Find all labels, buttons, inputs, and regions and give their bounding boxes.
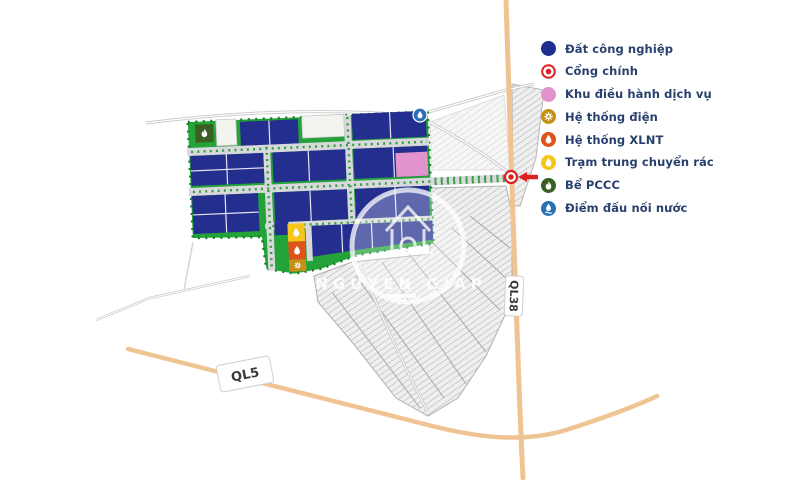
legend-label: Cổng chính <box>565 64 638 78</box>
service-area-icon <box>541 87 556 102</box>
legend-item-service-area: Khu điều hành dịch vụ <box>541 87 714 102</box>
svg-text:QL38: QL38 <box>506 280 520 312</box>
legend-label: Bể PCCC <box>565 178 620 192</box>
legend-item-water-connection: Điểm đấu nối nước <box>541 201 714 216</box>
legend-item-wastewater-system: Hệ thống XLNT <box>541 132 714 147</box>
electric-system-icon <box>541 109 556 124</box>
legend-item-industrial-land: Đất công nghiệp <box>541 41 714 56</box>
legend-label: Trạm trung chuyển rác <box>565 155 714 169</box>
legend-item-waste-transfer: Trạm trung chuyển rác <box>541 155 714 170</box>
legend-label: Hệ thống XLNT <box>565 133 663 147</box>
legend-label: Khu điều hành dịch vụ <box>565 87 712 101</box>
ql38-road-label: QL38 <box>504 276 523 317</box>
legend-label: Điểm đấu nối nước <box>565 201 687 215</box>
reserved-lot <box>302 114 345 138</box>
ql5-road-label: QL5 <box>216 356 274 393</box>
industrial-lot <box>274 222 289 236</box>
fire-tank-icon <box>541 178 556 193</box>
service-area-lot <box>395 152 428 177</box>
legend-label: Đất công nghiệp <box>565 42 673 56</box>
legend-item-main-gate: Cổng chính <box>541 64 714 79</box>
wastewater-system-icon <box>541 132 556 147</box>
legend: Đất công nghiệp Cổng chính Khu điều hành… <box>541 41 714 216</box>
water-connection-icon <box>541 201 556 216</box>
main-gate-icon <box>541 64 556 79</box>
legend-item-fire-tank: Bể PCCC <box>541 178 714 193</box>
water-connection-marker <box>413 108 427 122</box>
reserved-lot <box>216 119 237 146</box>
industrial-land-icon <box>541 41 556 56</box>
site-plan-page: NGUYEN GIAP QL5 QL38 Đất công <box>0 0 800 480</box>
legend-item-electric-system: Hệ thống điện <box>541 109 714 124</box>
waste-transfer-icon <box>541 155 556 170</box>
electric-lot <box>289 259 307 272</box>
legend-label: Hệ thống điện <box>565 110 658 124</box>
watermark-text: NGUYEN GIAP <box>315 275 486 293</box>
